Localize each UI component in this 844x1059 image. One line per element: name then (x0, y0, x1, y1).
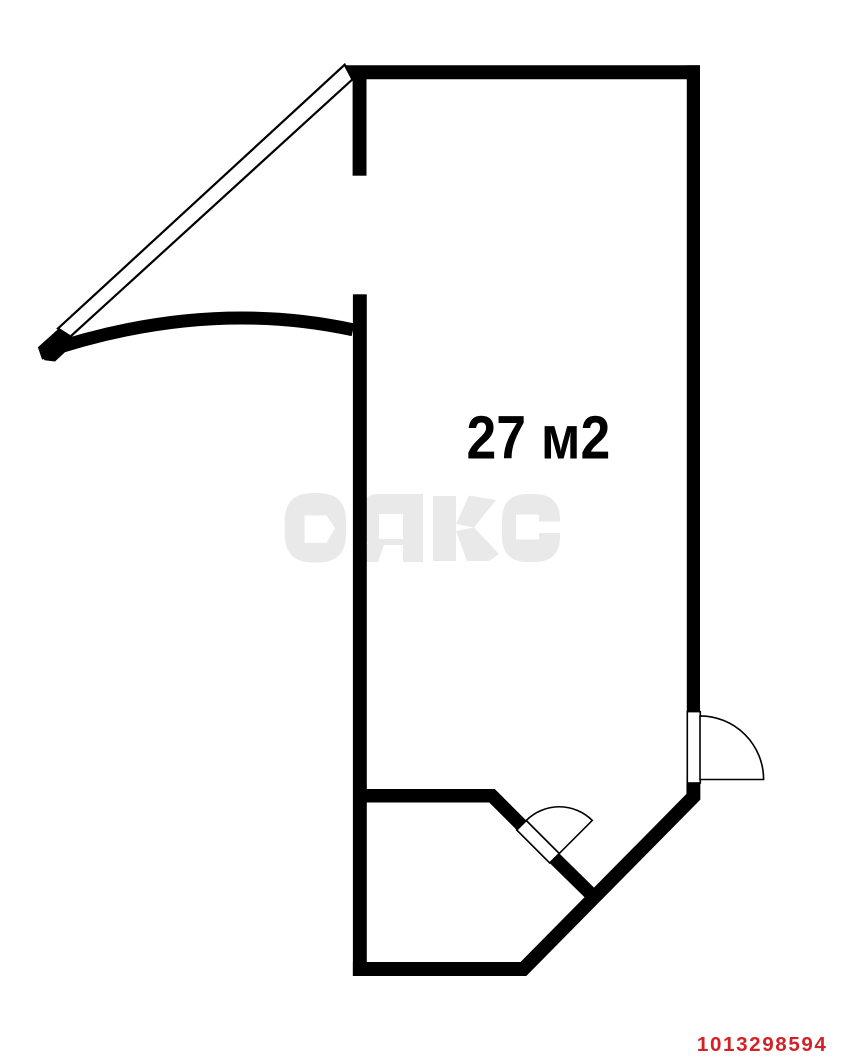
svg-text:27 м2: 27 м2 (467, 404, 611, 472)
svg-text:1013298594: 1013298594 (697, 1033, 827, 1056)
